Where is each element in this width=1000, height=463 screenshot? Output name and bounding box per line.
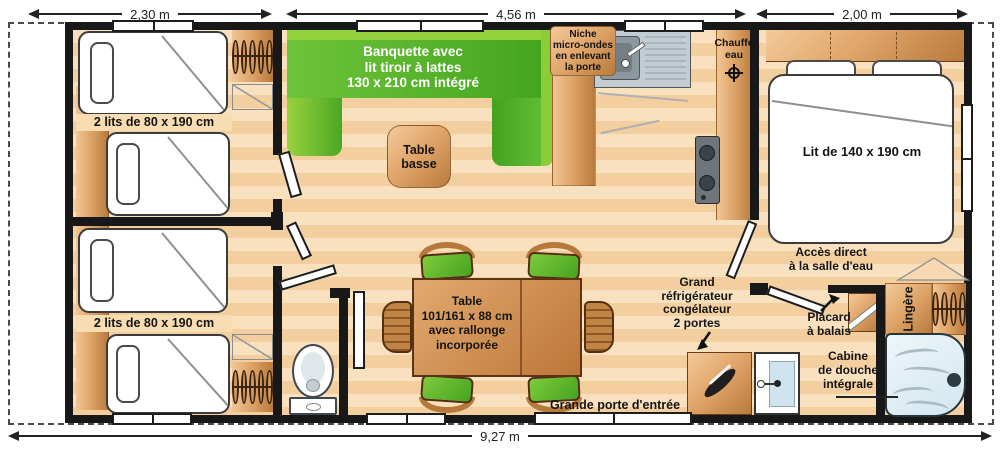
arrow-left-icon bbox=[8, 431, 19, 441]
wall bbox=[339, 288, 348, 423]
wall bbox=[273, 199, 282, 227]
bed-fold bbox=[167, 338, 230, 414]
bed-fold bbox=[161, 35, 228, 115]
wall bbox=[750, 283, 768, 295]
entrance-label: Grande porte d'entrée bbox=[540, 398, 690, 412]
arrow-right-icon bbox=[981, 431, 992, 441]
linen-closet-label: Lingère bbox=[902, 286, 916, 331]
floorplan-canvas: 2,30 m 4,56 m 2,00 m 2 lits de bbox=[0, 0, 1000, 463]
banquette-left-arm bbox=[287, 98, 342, 156]
pillow bbox=[90, 42, 114, 104]
broom-closet-arrow-icon bbox=[818, 292, 842, 314]
fridge bbox=[687, 352, 752, 415]
dimension-total-length: 9,27 m bbox=[8, 428, 992, 444]
single-bed bbox=[78, 228, 228, 313]
linen-closet: Lingère bbox=[885, 283, 932, 335]
pillow bbox=[116, 345, 140, 403]
chair-seat bbox=[420, 374, 474, 404]
water-heater-icon bbox=[725, 64, 743, 82]
window bbox=[112, 413, 192, 425]
microwave-niche-callout: Niche micro-ondes en enlevant la porte bbox=[550, 26, 616, 76]
hanger-rail bbox=[232, 386, 273, 388]
bedroom-bottom-label: 2 lits de 80 x 190 cm bbox=[76, 316, 232, 330]
coffee-table-label: Table basse bbox=[401, 143, 436, 171]
dimension-label: 9,27 m bbox=[472, 429, 528, 444]
knob-icon bbox=[701, 195, 706, 200]
bedroom-top-label: 2 lits de 80 x 190 cm bbox=[76, 115, 232, 129]
window bbox=[961, 104, 973, 212]
burner-icon bbox=[699, 175, 715, 191]
banquette-label: Banquette avec lit tiroir à lattes 130 x… bbox=[296, 44, 530, 91]
arrow-right-icon bbox=[735, 9, 746, 19]
bed-fold bbox=[161, 232, 228, 313]
headboard-cabinet bbox=[766, 30, 964, 62]
single-bed bbox=[106, 334, 230, 414]
wall bbox=[73, 217, 283, 226]
pillow bbox=[116, 143, 140, 205]
water-heater-label: Chauffe eau bbox=[708, 38, 760, 62]
hanger-icon bbox=[232, 40, 239, 74]
single-bed bbox=[106, 132, 230, 216]
arrow-left-icon bbox=[286, 9, 297, 19]
fridge-handle bbox=[701, 365, 739, 401]
pillow bbox=[90, 239, 114, 302]
shower-drain-icon bbox=[947, 373, 961, 387]
bed-fold bbox=[772, 100, 954, 130]
dimension-middle-section: 4,56 m bbox=[286, 6, 746, 22]
shelf bbox=[232, 84, 273, 110]
stove bbox=[695, 136, 720, 204]
dimension-label: 4,56 m bbox=[488, 7, 544, 22]
broom-closet-label: Placard à balais bbox=[797, 311, 861, 338]
shower-label: Cabine de douche intégrale bbox=[810, 349, 886, 391]
microwave-niche-label: Niche micro-ondes en enlevant la porte bbox=[553, 29, 613, 73]
door-leaf bbox=[353, 291, 365, 369]
bathroom-access-label: Accès direct à la salle d'eau bbox=[768, 245, 894, 273]
hanger-icon bbox=[258, 40, 265, 74]
faucet-icon bbox=[621, 59, 630, 68]
arrow-left-icon bbox=[756, 9, 767, 19]
dimension-label: 2,30 m bbox=[122, 7, 178, 22]
master-bed-label: Lit de 140 x 190 cm bbox=[772, 145, 952, 160]
closet-fold-doors-icon bbox=[896, 254, 970, 282]
hangers bbox=[232, 39, 273, 75]
dimension-label: 2,00 m bbox=[834, 7, 890, 22]
fridge-arrow-icon bbox=[696, 330, 716, 352]
hanger-icon bbox=[249, 40, 256, 74]
burner-icon bbox=[699, 145, 715, 161]
washbasin bbox=[754, 352, 800, 415]
chair-seat bbox=[420, 251, 474, 281]
dining-table-label: Table 101/161 x 88 cm avec rallonge inco… bbox=[406, 294, 528, 352]
chair-barrel bbox=[584, 301, 614, 353]
fridge-label: Grand réfrigérateur congélateur 2 portes bbox=[648, 276, 746, 330]
single-bed bbox=[78, 31, 228, 115]
shower-leader-line bbox=[836, 396, 898, 398]
arrow-right-icon bbox=[261, 9, 272, 19]
drainboard bbox=[645, 36, 686, 81]
bed-fold bbox=[167, 136, 230, 216]
hanger-icon bbox=[266, 40, 273, 74]
arrow-right-icon bbox=[957, 9, 968, 19]
dimension-right-section: 2,00 m bbox=[756, 6, 968, 22]
chair-seat bbox=[527, 252, 580, 281]
faucet-icon bbox=[757, 380, 765, 388]
toilet-tank bbox=[289, 397, 337, 415]
hanger-rail bbox=[932, 308, 966, 310]
toilet-bowl bbox=[292, 344, 334, 398]
shelf bbox=[232, 334, 273, 360]
dimension-left-section: 2,30 m bbox=[28, 6, 272, 22]
shower-tray bbox=[885, 333, 966, 417]
coffee-table: Table basse bbox=[387, 125, 451, 188]
arrow-left-icon bbox=[28, 9, 39, 19]
hanger-icon bbox=[241, 40, 248, 74]
window bbox=[366, 413, 446, 425]
wall bbox=[273, 30, 282, 155]
entrance-door bbox=[534, 412, 692, 425]
hanger-rail bbox=[232, 55, 273, 57]
